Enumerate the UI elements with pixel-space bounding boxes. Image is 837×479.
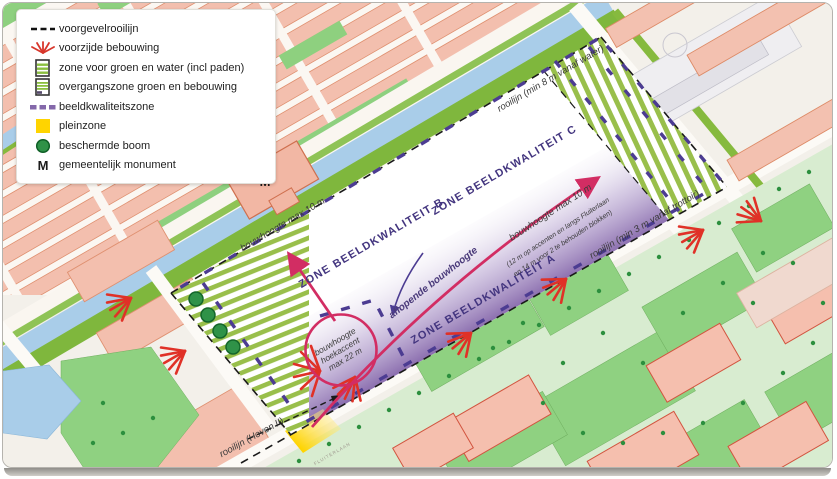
- monument-m-icon: M: [27, 158, 59, 173]
- legend-item-voorzijde-bebouwing: voorzijde bebouwing: [27, 39, 265, 59]
- legend-label: beeldkwaliteitszone: [59, 101, 154, 113]
- yellow-square-icon: [27, 119, 59, 133]
- legend-label: pleinzone: [59, 120, 106, 132]
- tree-circle-icon: [27, 138, 59, 154]
- legend-item-overgangszone: overgangszone groen en bebouwing: [27, 78, 265, 98]
- legend-box: voorgevelrooilijn voorzijde bebouwing zo…: [16, 9, 276, 184]
- legend-label: gemeentelijk monument: [59, 159, 176, 171]
- legend-label: overgangszone groen en bebouwing: [59, 81, 237, 93]
- legend-item-beschermde-boom: beschermde boom: [27, 136, 265, 156]
- map-edge-shadow: [4, 468, 831, 476]
- legend-label: beschermde boom: [59, 140, 150, 152]
- legend-label: voorgevelrooilijn: [59, 23, 139, 35]
- legend-label: voorzijde bebouwing: [59, 42, 159, 54]
- dashed-line-icon: [27, 25, 59, 33]
- green-water-zone-icon: [27, 59, 59, 77]
- legend-item-beeldkwaliteitszone: beeldkwaliteitszone: [27, 97, 265, 117]
- legend-item-zone-groen-water: zone voor groen en water (incl paden): [27, 58, 265, 78]
- legend-item-gemeentelijk-monument: M gemeentelijk monument: [27, 156, 265, 176]
- planning-map-screenshot: M: [0, 0, 837, 479]
- transition-zone-icon: [27, 78, 59, 96]
- legend-item-voorgevelrooilijn: voorgevelrooilijn: [27, 19, 265, 39]
- legend-label: zone voor groen en water (incl paden): [59, 62, 244, 74]
- building-front-icon: [27, 41, 59, 55]
- legend-item-pleinzone: pleinzone: [27, 117, 265, 137]
- purple-dashes-icon: [27, 104, 59, 110]
